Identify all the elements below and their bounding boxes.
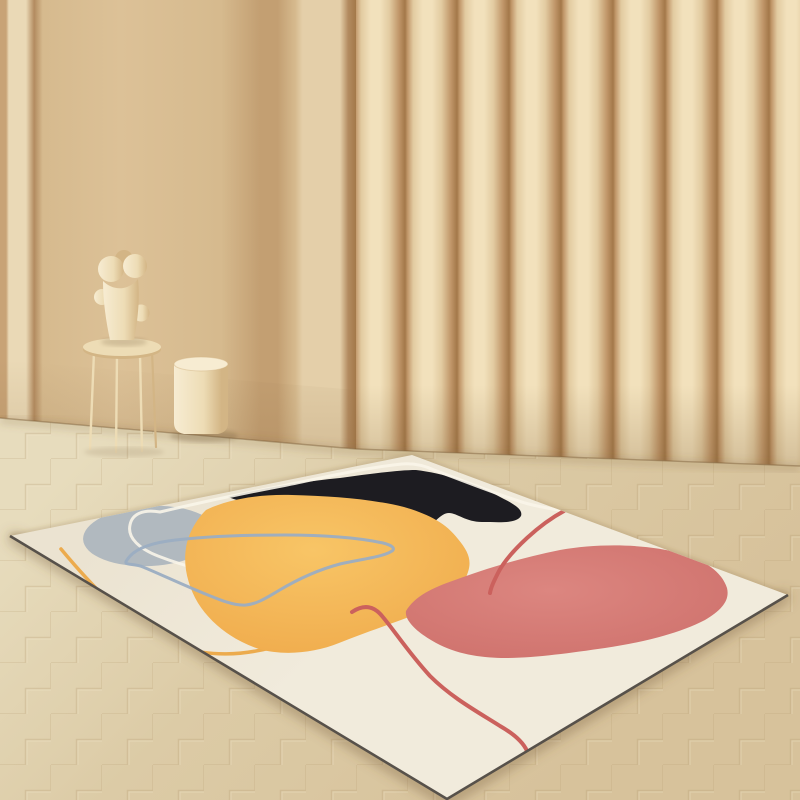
curved-column-panels [356,0,800,466]
room-photo: abstract-shapes-area-rug [0,0,800,800]
sculpture-ball-left [98,256,124,282]
pedestal-body [174,363,228,434]
table-shadow [84,447,164,457]
sculpture-ball-right [123,254,147,278]
scene-canvas [0,0,800,800]
